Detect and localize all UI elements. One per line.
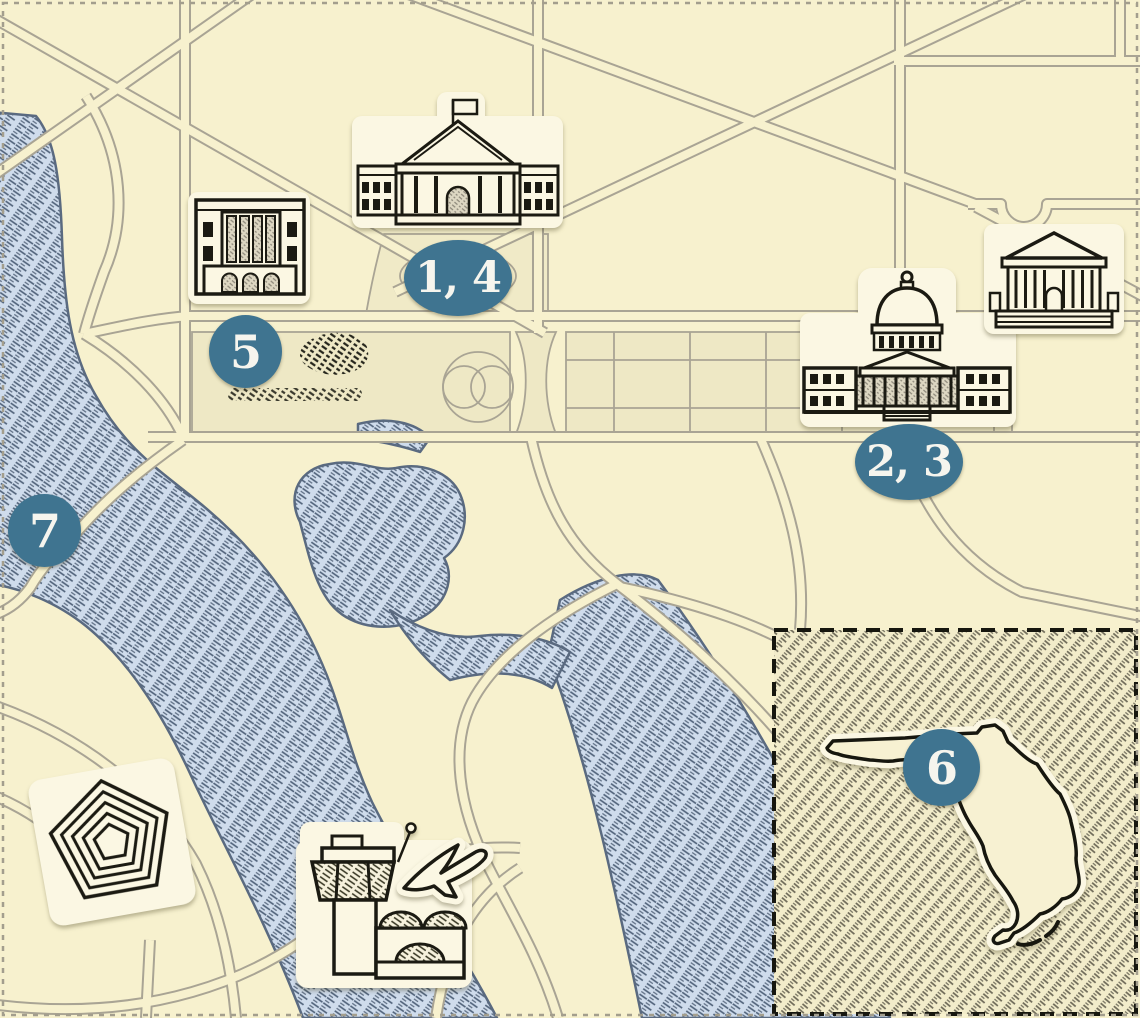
dc-landmark-map: 1, 4 5 2, 3 7 6 xyxy=(0,0,1140,1018)
marker-badge-florida[interactable]: 6 xyxy=(903,729,980,806)
marker-badge-federal-building[interactable]: 5 xyxy=(209,315,282,388)
florida-inset-box xyxy=(774,630,1136,1014)
pentagon-building[interactable] xyxy=(26,756,197,927)
marker-badge-capitol[interactable]: 2, 3 xyxy=(855,424,963,500)
federal-building[interactable] xyxy=(188,192,310,304)
marker-badge-white-house[interactable]: 1, 4 xyxy=(404,240,512,316)
map-canvas xyxy=(0,0,1140,1018)
supreme-court-building[interactable] xyxy=(984,224,1124,334)
marker-badge-potomac[interactable]: 7 xyxy=(8,494,81,567)
